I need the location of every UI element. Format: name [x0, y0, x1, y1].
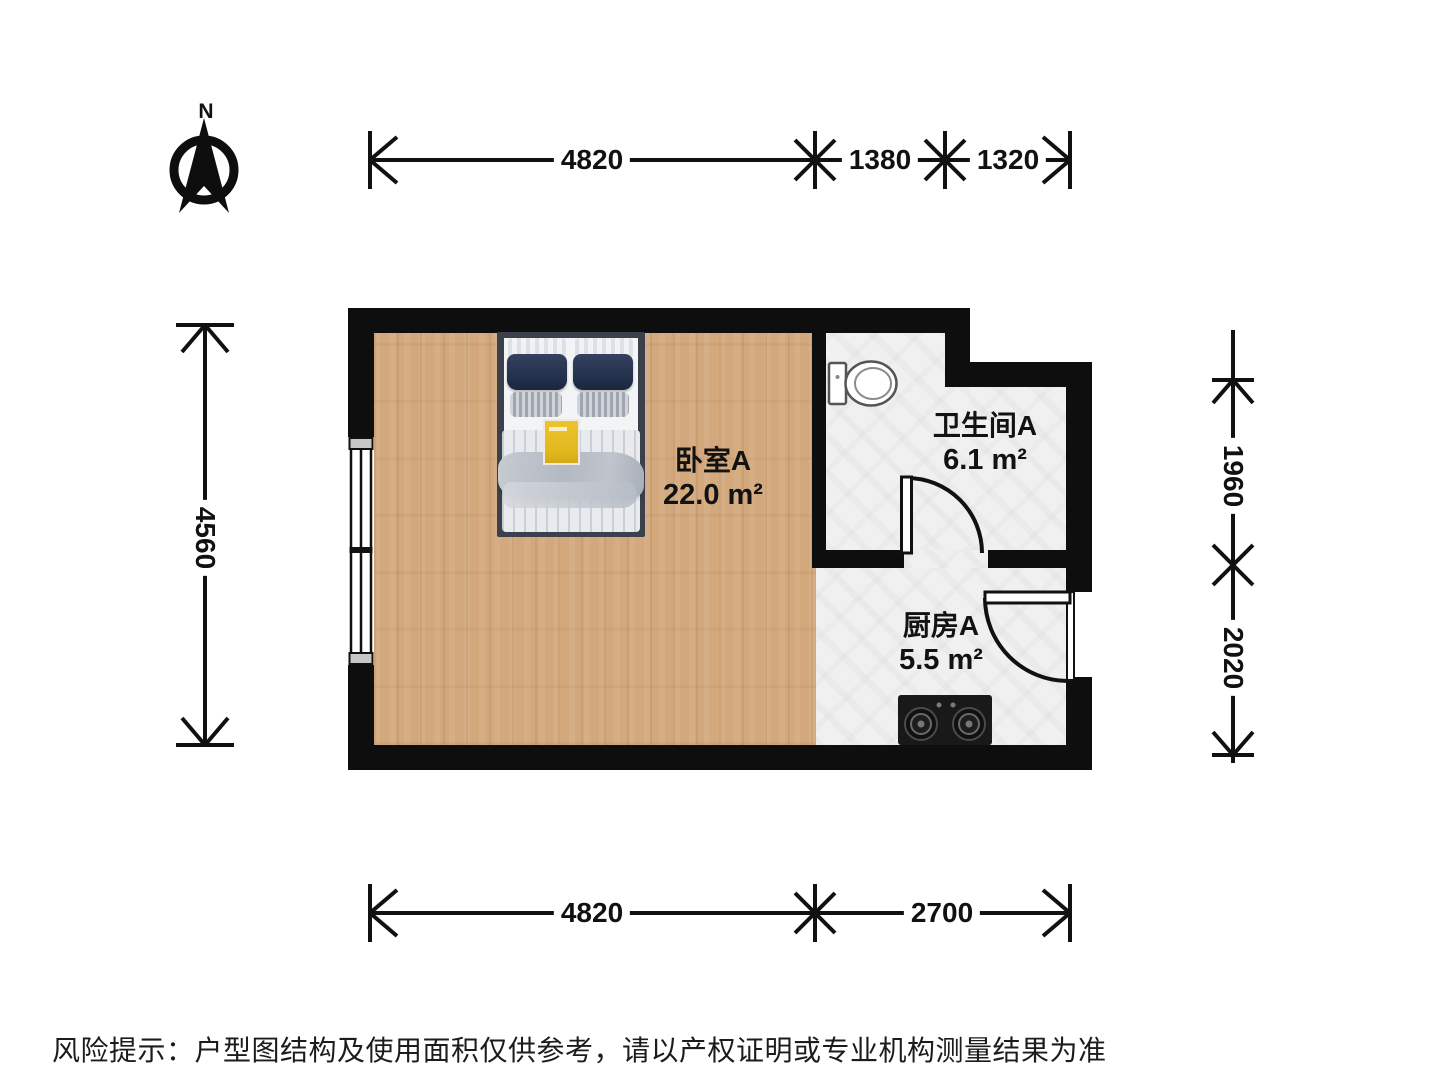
gas-stove-icon	[898, 695, 992, 745]
kitchen-name: 厨房A	[903, 611, 979, 640]
room-label-bedroom: 卧室A 22.0 m²	[663, 446, 763, 510]
dim-line-top	[370, 131, 1070, 189]
bathroom-door-icon	[902, 477, 983, 553]
room-label-bathroom: 卫生间A 6.1 m²	[933, 411, 1037, 475]
dim-line-right	[1212, 330, 1254, 763]
kitchen-door-icon	[985, 592, 1074, 681]
toilet-icon	[829, 362, 897, 406]
bathroom-area: 6.1 m²	[943, 445, 1027, 475]
dim-top-3: 1320	[970, 145, 1046, 175]
bedroom-name: 卧室A	[675, 446, 751, 475]
kitchen-area: 5.5 m²	[899, 645, 983, 675]
dim-top-1: 4820	[554, 145, 630, 175]
dim-bottom-1: 4820	[554, 898, 630, 928]
dim-right-2: 2020	[1218, 620, 1248, 696]
dim-right-1: 1960	[1218, 438, 1248, 514]
disclaimer-text: 风险提示：户型图结构及使用面积仅供参考，请以产权证明或专业机构测量结果为准	[52, 1029, 1107, 1069]
north-label: N	[198, 100, 213, 124]
bedroom-area: 22.0 m²	[663, 480, 763, 510]
dim-bottom-2: 2700	[904, 898, 980, 928]
bathroom-name: 卫生间A	[933, 411, 1037, 440]
dimension-lines	[176, 131, 1254, 942]
floorplan-canvas: N 4820 1380 1320 4820 2700 4560 1960 202…	[0, 0, 1440, 1080]
window-icon	[348, 437, 374, 665]
dim-left-1: 4560	[190, 500, 220, 576]
dim-top-2: 1380	[842, 145, 918, 175]
north-arrow-icon	[174, 118, 234, 213]
room-label-kitchen: 厨房A 5.5 m²	[899, 611, 983, 675]
